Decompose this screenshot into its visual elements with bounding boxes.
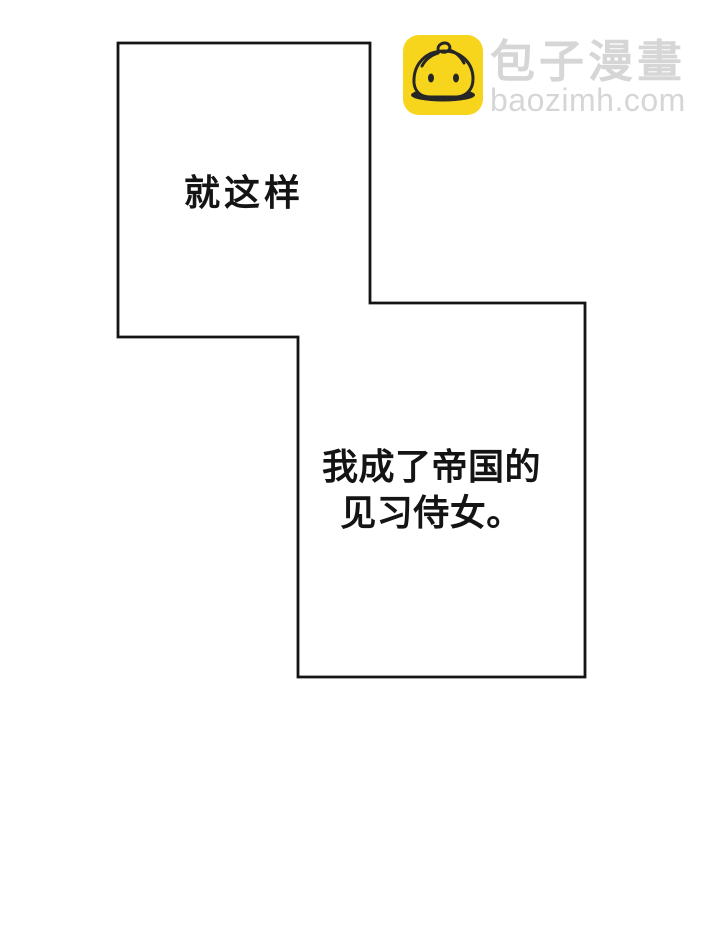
narration-line: 就这样	[184, 164, 304, 216]
narration-line: 我成了帝国的	[322, 444, 541, 490]
comic-page: 就这样 我成了帝国的 见习侍女。 包子漫畫 baozimh.com	[0, 0, 720, 947]
narration-text-2: 我成了帝国的 见习侍女。	[288, 303, 575, 677]
narration-line: 见习侍女。	[340, 490, 523, 536]
baozimh-watermark: 包子漫畫 baozimh.com	[403, 35, 686, 115]
watermark-site-url: baozimh.com	[490, 85, 686, 115]
baozi-bun-icon	[403, 35, 483, 115]
watermark-text: 包子漫畫 baozimh.com	[490, 38, 686, 115]
watermark-site-name: 包子漫畫	[490, 38, 686, 85]
narration-text-1: 就这样	[118, 43, 370, 337]
